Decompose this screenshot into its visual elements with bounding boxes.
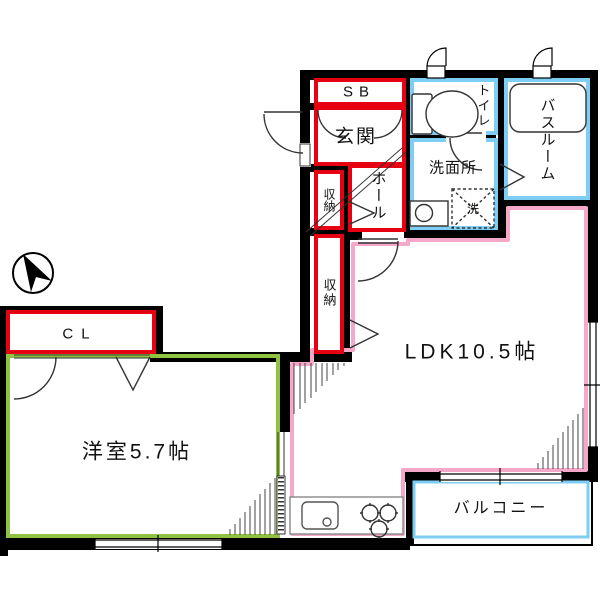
western-ldk-sliding-door [277, 432, 285, 534]
washroom-label: 洗面所 [429, 161, 477, 176]
closet-door-arc [14, 357, 56, 399]
window-bath-top [533, 48, 552, 78]
floorplan: SB 玄関 収納 ホール トイレ バスルーム 洗面所 洗 収納 CL LDK10… [0, 0, 600, 600]
washbasin-icon [410, 201, 448, 226]
hatch-ldk-southeast [538, 408, 583, 469]
toilet-label: トイレ [477, 84, 490, 129]
storage-lower-label: 収納 [323, 278, 336, 308]
washer-label: 洗 [467, 203, 479, 215]
western-room-label: 洋室5.7帖 [82, 442, 192, 463]
toilet-icon [412, 91, 478, 137]
sb-label: SB [343, 85, 375, 100]
closet-door-v [116, 357, 150, 390]
window-toilet-top [427, 48, 446, 78]
kitchen-sink [302, 502, 338, 529]
compass-north-icon [13, 253, 53, 293]
storage-upper-label: 収納 [323, 188, 335, 212]
hall-label: ホール [371, 171, 386, 222]
bathroom-label: バスルーム [540, 98, 555, 183]
ldk-label: LDK10.5帖 [405, 342, 540, 363]
hatch-ldk-northwest [294, 363, 344, 414]
hatch-western-southeast [230, 478, 275, 535]
genkan-label: 玄関 [335, 128, 377, 147]
closet-label: CL [62, 327, 97, 342]
balcony-label: バルコニー [454, 501, 549, 517]
